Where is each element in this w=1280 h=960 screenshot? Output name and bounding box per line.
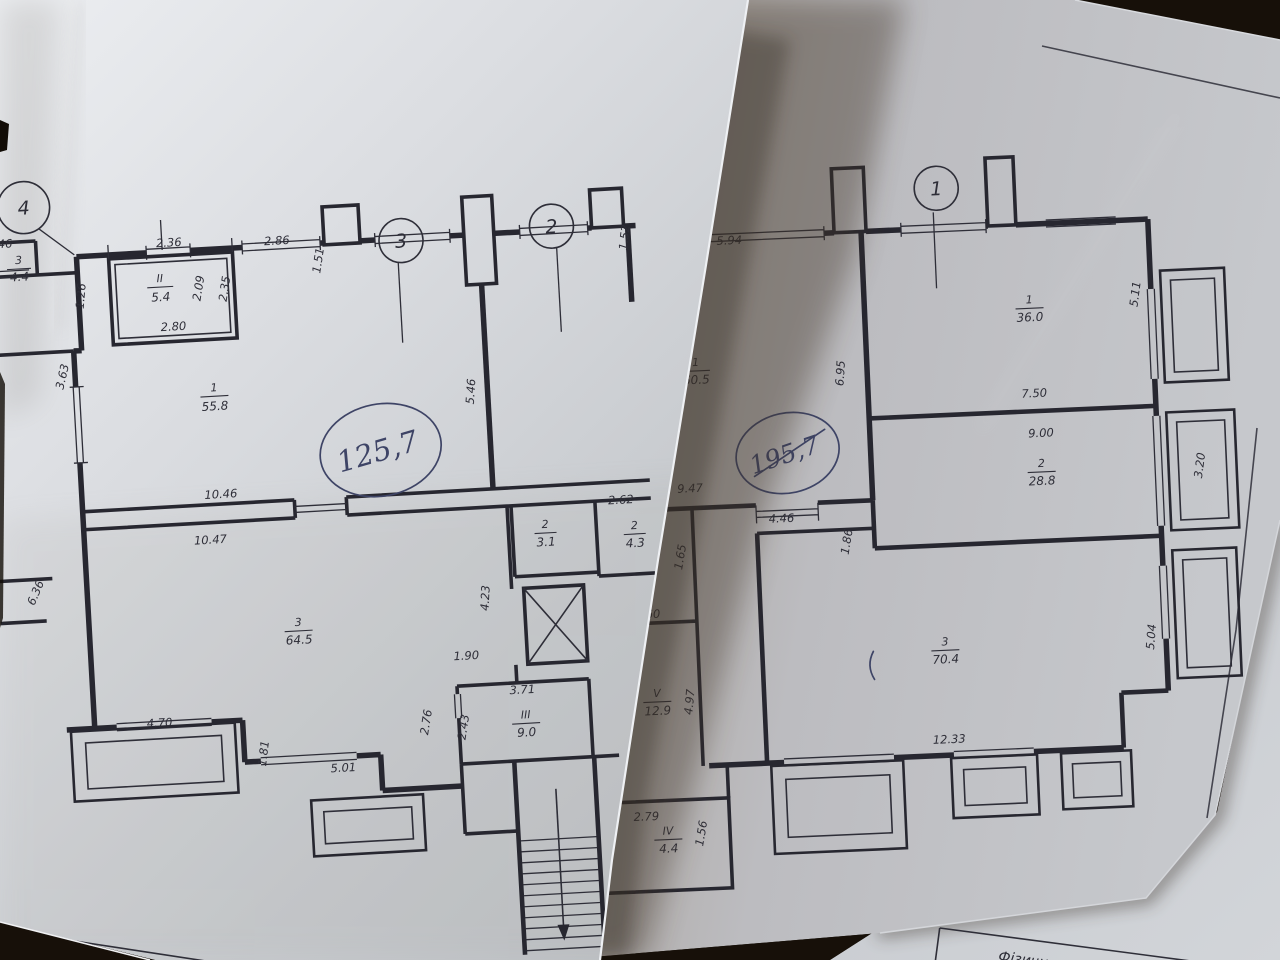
room-3-area: 64.5: [285, 632, 312, 647]
dim-5-46: 5.46: [463, 378, 479, 404]
axis-2-label: 2: [545, 216, 558, 239]
dim-2-36: 2.36: [156, 235, 182, 250]
dim-12-33: 12.33: [932, 732, 966, 747]
axis-4-label: 4: [17, 197, 30, 220]
dim-1-26: 1.26: [73, 283, 89, 310]
room-36-area: 36.0: [1016, 310, 1044, 325]
dim-2-86: 2.86: [264, 233, 290, 248]
dim-5-01: 5.01: [330, 760, 356, 775]
axis-1-label: 1: [930, 178, 943, 201]
room-part-num: 3: [15, 254, 23, 267]
room-70-area: 70.4: [932, 652, 959, 667]
room-70-num: 3: [941, 635, 949, 648]
room-2b-area: 4.3: [625, 535, 645, 550]
photo-of-floorplan-sheets: Фізичн: [0, 0, 1280, 960]
room-II-num: II: [156, 272, 163, 285]
room-2a-area: 3.1: [536, 534, 556, 549]
room-28-num: 2: [1038, 457, 1046, 470]
dim-9-00: 9.00: [1028, 425, 1054, 440]
dim-10-46: 10.46: [204, 486, 238, 502]
room-2b-num: 2: [630, 519, 638, 532]
room-3-num: 3: [294, 616, 302, 629]
dim-5-04: 5.04: [1143, 624, 1159, 651]
dim-7-50: 7.50: [1021, 386, 1047, 401]
dim-4-70: 4.70: [146, 715, 172, 730]
dim-10-47: 10.47: [194, 532, 228, 548]
dim-1-90: 1.90: [453, 648, 479, 663]
room-part-area: 4.4: [10, 269, 30, 284]
room-1-num: 1: [210, 381, 218, 394]
dim-6-95: 6.95: [832, 360, 848, 386]
room-III-num: III: [520, 708, 530, 722]
scene-svg: Фізичн: [0, 0, 1280, 960]
room-28-area: 28.8: [1028, 473, 1056, 488]
room-1-area: 55.8: [201, 398, 229, 413]
room-III-area: 9.0: [517, 725, 537, 740]
dim-4-46: 4.46: [768, 511, 794, 526]
room-2a-num: 2: [541, 518, 549, 531]
dim-3-46: 3.46: [0, 236, 13, 251]
dim-2-80: 2.80: [160, 319, 186, 334]
dim-2-62: 2.62: [608, 492, 634, 507]
dim-3-71: 3.71: [509, 682, 535, 697]
dim-4-23: 4.23: [478, 585, 493, 611]
room-II-area: 5.4: [151, 290, 171, 305]
room-36-num: 1: [1025, 293, 1033, 306]
axis-3-label: 3: [394, 230, 407, 253]
